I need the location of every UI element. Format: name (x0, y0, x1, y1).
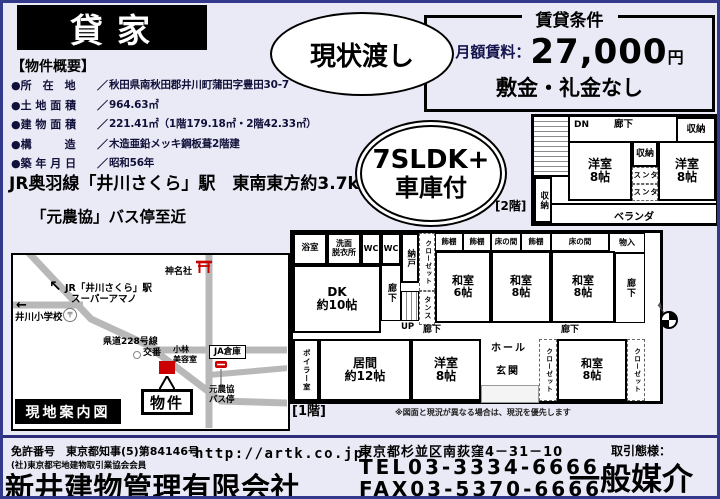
property-callout-icon (159, 376, 175, 390)
closet-1f-n: クローゼット (419, 233, 435, 291)
compass-icon (653, 299, 685, 333)
overview-row-built: ●築 年 月 日／昭和56年 (11, 155, 293, 171)
yoshitsu-1f: 洋室 8帖 (411, 339, 481, 401)
transaction-type: 一般媒介 (569, 454, 693, 499)
bathroom: 浴室 (293, 233, 327, 265)
entrance-label: 玄関 (496, 366, 520, 378)
shelf-2: 飾棚 (463, 233, 491, 251)
floor2-label: [2階] (495, 200, 526, 214)
layout-badge-line2: 車庫付 (395, 175, 467, 201)
stairs-dn-label: DN (574, 120, 589, 130)
room-2f-east: 洋室 8帖 (658, 141, 716, 201)
map-bus-stop-label: 元農協 バス停 (209, 385, 235, 405)
license-number: 東京都知事(5)第84146号 (66, 445, 199, 458)
flyer-page: 貸家 現状渡し 賃貸条件 月額賃料：27,000円 敷金・礼金なし 【物件概要】… (0, 0, 720, 499)
fax-number: FAX03-5370-6666 (359, 477, 602, 499)
stairs-up-label: UP (401, 323, 414, 333)
closet-1f-east: クローゼット (627, 339, 645, 401)
closet-1f-west: クローゼット (539, 339, 557, 401)
hallway-label-2f: 廊下 (614, 120, 633, 131)
footer: 免許番号 東京都知事(5)第84146号 (社)東京都宅地建物取引業協会会員 新… (3, 435, 717, 499)
closet-2f-sw: 収納 (534, 177, 552, 223)
veranda: ベランダ (552, 203, 716, 225)
tokonoma-2: 床の間 (551, 233, 609, 251)
condition-badge: 現状渡し (270, 12, 454, 96)
boiler-room: ボイラー室 (293, 339, 319, 401)
title-badge: 貸家 (17, 5, 207, 50)
hallway-1f-west: 廊下 (381, 265, 401, 321)
bus-stop-icon (215, 361, 227, 385)
tansu-2f-2: タンス (632, 184, 658, 201)
washroom: 洗面 脱衣所 (327, 233, 361, 265)
washitsu-8c: 和室 8帖 (557, 339, 627, 401)
tel-number: TEL03-3334-6666 (359, 455, 600, 479)
overview-row-structure: ●構 造／木造亜鉛メッキ鋼板葺2階建 (11, 136, 293, 152)
access-bus: 「元農協」バス停至近 (31, 209, 186, 227)
hallway-1f-east: 廊下 (615, 253, 645, 323)
map-school-label: 井川小学校 (15, 312, 63, 323)
wc-2: WC (381, 233, 401, 265)
map-road228-label: 県道228号線 (103, 337, 158, 348)
monoire: 物入 (609, 233, 645, 253)
overview-heading: 【物件概要】 (11, 59, 95, 75)
layout-badge-inner: 7SLDK+ 車庫付 (360, 125, 502, 222)
overview-row-building: ●建 物 面 積／221.41㎡（1階179.18㎡・2階42.33㎡） (11, 116, 293, 132)
washitsu-8a: 和室 8帖 (491, 251, 551, 323)
floorplan-1f: 浴室 洗面 脱衣所 WC WC 納戸 クローゼット DK 約10帖 廊下 UP … (290, 230, 663, 404)
floor1-label: [1階] (292, 405, 326, 420)
rental-terms-box: 賃貸条件 月額賃料：27,000円 敷金・礼金なし (424, 15, 715, 112)
washitsu-6: 和室 6帖 (435, 251, 491, 323)
rent-label: 月額賃料： (455, 43, 530, 61)
layout-badge-line1: 7SLDK+ (373, 146, 490, 175)
shelf-3: 飾棚 (521, 233, 551, 251)
wc-1: WC (361, 233, 381, 265)
map-supermarket-label: スーパーアマノ (71, 294, 137, 305)
floorplan-note: ※図面と現況が異なる場合は、現況を優先します (395, 408, 571, 417)
property-box-label: 物件 (141, 389, 193, 415)
police-dot-icon (133, 351, 141, 359)
dining-kitchen: DK 約10帖 (293, 265, 381, 333)
floorplan-2f: DN 廊下 収納 洋室 8帖 収納 タンス タンス 洋室 8帖 収納 ベランダ (531, 114, 719, 226)
overview-row-location: ●所 在 地／秋田県南秋田郡井川町蒲田字豊田30-7 (11, 77, 293, 93)
map-salon-label: 小林 美容室 (173, 345, 197, 364)
map-caption: 現地案内図 (15, 399, 121, 424)
tansu-1f: タンス (419, 291, 435, 325)
rent-unit: 円 (668, 48, 684, 67)
layout-badge: 7SLDK+ 車庫付 (355, 120, 507, 227)
entrance-step (481, 385, 539, 403)
map-ja-warehouse-label: JA倉庫 (209, 345, 246, 359)
hallway-1f-south-label2: 廊下 (561, 325, 579, 335)
map-police-label: 交番 (143, 348, 161, 359)
shelf-1: 飾棚 (435, 233, 463, 251)
area-map: ↖ JR「井川さくら」駅 スーパーアマノ 〒 ← 井川小学校 神名社 県道228… (11, 253, 290, 431)
closet-2f-ne: 収納 (676, 117, 716, 143)
property-marker (159, 361, 175, 374)
deposit-note: 敷金・礼金なし (427, 72, 712, 102)
license-label: 免許番号 (11, 445, 55, 458)
overview-rows: ●所 在 地／秋田県南秋田郡井川町蒲田字豊田30-7 ●土 地 面 積／964.… (11, 77, 293, 171)
room-2f-west: 洋室 8帖 (568, 141, 632, 201)
tokonoma-1: 床の間 (491, 233, 521, 251)
company-name: 新井建物管理有限会社 (5, 465, 300, 499)
torii-icon (195, 258, 213, 272)
arrow-northwest-icon: ↖ (49, 277, 62, 295)
rent-line: 月額賃料：27,000円 (427, 32, 712, 72)
company-url: http://artk.co.jp/ (195, 446, 374, 462)
access-train: JR奥羽線「井川さくら」駅 東南東方約3.7km (9, 175, 377, 195)
rent-value: 27,000 (530, 32, 667, 72)
license-row: 免許番号 東京都知事(5)第84146号 (11, 443, 199, 459)
living-room: 居間 約12帖 (319, 339, 411, 401)
storeroom: 納戸 (401, 233, 419, 283)
overview-row-land: ●土 地 面 積／964.63㎡ (11, 97, 293, 113)
hallway-1f-south-label1: 廊下 (423, 325, 441, 335)
post-office-icon: 〒 (63, 308, 77, 322)
rental-terms-title: 賃貸条件 (522, 6, 618, 31)
stairs-up (401, 291, 419, 321)
map-station-label: JR「井川さくら」駅 (65, 283, 152, 294)
tansu-2f-1: タンス (632, 167, 658, 184)
map-shrine-label: 神名社 (165, 267, 192, 278)
stairs-down (534, 117, 570, 177)
closet-2f-mid: 収納 (632, 141, 658, 167)
hall-label: ホール (491, 343, 527, 355)
washitsu-8b: 和室 8帖 (551, 251, 615, 323)
